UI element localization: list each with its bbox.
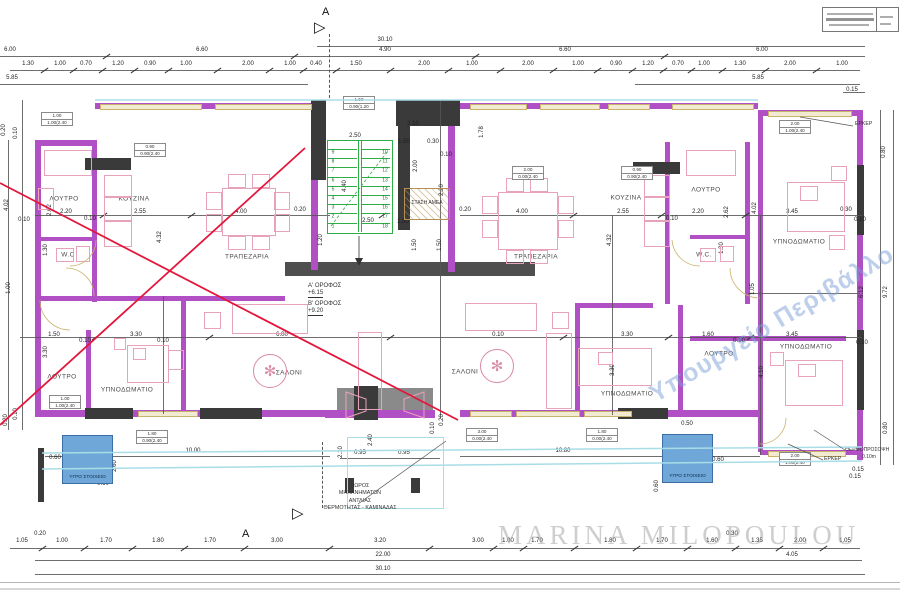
dim-line [35,560,750,561]
furniture [228,174,246,188]
dim-label: 0.20 [439,414,445,426]
opening-schedule-tag: 1.800.90(2.40 [136,430,168,444]
dim-label: 1.70 [204,538,216,544]
room-label: ΤΡΑΠΕΖΑΡΙΑ [225,254,269,261]
furniture [686,150,736,176]
stair-number: 4 [332,197,335,202]
dim-label: 10.80 [555,448,570,454]
dim-label: 0.10 [13,408,19,420]
dim-label: 0.80 [881,146,887,158]
dim-label: 6.00 [4,47,16,53]
furniture [252,236,270,250]
dim-label: 30.10 [377,37,392,43]
tag-heights: 1.00(2.40 [780,459,810,466]
title-block [822,7,899,32]
dim-label: 4.90 [379,47,391,53]
furniture [546,333,572,409]
dim-label: 1.05 [750,283,756,295]
dim-line [0,588,900,590]
dim-label: 1.00 [180,61,192,67]
plant: ✻ [480,349,514,383]
opening-schedule-tag: 3.000.00(2.40 [466,428,498,442]
erker-label-bottom: ΕΡΚΕΡ [824,456,841,462]
title-block-divider [876,8,877,31]
window-strip [138,411,198,417]
furniture [104,175,132,197]
dim-label: 6.60 [196,47,208,53]
dim-label: 2.55 [134,209,146,215]
dim-label: 2.50 [349,133,361,139]
window-strip [100,104,202,110]
dim-label: 1.50 [48,332,60,338]
wet-element-right: ΥΓΡΟ ΣΤΟΙΧΕΙΟ [662,434,713,483]
dim-label: 6.00 [756,47,768,53]
window-strip [584,411,632,417]
dim-label: 2.55 [617,209,629,215]
furniture [274,192,290,210]
thermal-facade-label: ΘΕΡΜΟΠΡΟΣΟΨΗ [845,447,889,453]
dim-label: 1.00 [56,538,68,544]
title-block-text-line [829,24,869,26]
opening-schedule-tag: 0.900.90(2.40 [134,143,166,157]
dim-label: 5.85 [6,75,18,81]
tag-heights: 0.90(2.40 [135,150,165,157]
furniture [204,312,221,329]
dim-label: 0.10 [13,127,19,139]
tag-heights: 1.00(2.40 [50,402,80,409]
dim-label: 0.70 [672,61,684,67]
dim-label: 0.10 [18,217,30,223]
stair-number: 15 [382,197,388,202]
furniture [232,304,308,334]
dim-label: 4.02 [4,199,10,211]
machinery-note: ΧΩΡΟΣ ΜΗΧΑΝΗΜΑΤΩΝ ΑΝΤΛΙΑΣ ΘΕΡΜΟΤΗΤΑΣ - Κ… [312,483,408,512]
dim-label: 2.10 [338,446,344,458]
dim-label: 1.50 [437,239,443,251]
furniture [644,197,670,221]
dim-label: 1.00 [572,61,584,67]
furniture [168,350,184,370]
dim-label: 1.20 [642,61,654,67]
wall-segment [35,140,97,146]
tag-heights: 0.90(2.40 [137,437,167,444]
dim-label: 1.30 [734,61,746,67]
dim-line [0,56,865,57]
furniture [56,248,74,262]
dim-label: 0.20 [1,124,7,136]
section-letter-top: A [322,6,329,18]
dim-label: 1.20 [112,61,124,67]
dim-label: 0.90 [610,61,622,67]
section-letter-bottom: A [242,528,249,540]
dim-label: 1.00 [698,61,710,67]
furniture [829,235,845,250]
level-name: Β' ΟΡΟΦΟΣ [308,301,341,307]
dim-label: 0.15 [849,474,861,480]
level-marker-b: Β' ΟΡΟΦΟΣ +9.20 [308,301,341,316]
wall-band [285,262,535,276]
dim-label: 0.90 [144,61,156,67]
furniture [578,348,652,386]
window-strip [215,104,312,110]
opening-schedule-tag: 1.001.00(2.40 [49,395,81,409]
dim-line [880,110,881,465]
window-strip [672,104,754,110]
section-centerline-bottom [322,442,323,508]
room-label: ΥΠΝΟΔΩΜΑΤΙΟ [101,387,153,394]
stair-number: 5 [332,187,335,192]
tag-heights: 0.00(2.40 [513,173,543,180]
dim-label: 0.60 [49,455,61,461]
wall-segment [35,140,41,417]
dim-line [10,70,860,71]
dim-label: 3.45 [786,332,798,338]
opening-schedule-tag: 1.800.00(2.40 [586,428,618,442]
furniture [104,197,132,221]
window-strip [470,104,527,110]
level-elevation: +9.20 [308,308,323,316]
furniture [228,236,246,250]
stair-number: 16 [382,206,388,211]
dim-label: 0.10 [84,216,96,222]
stair-number: 11 [382,160,387,165]
room-label: ΚΟΥΖΙΝΑ [611,195,642,202]
wall-column [38,448,44,502]
title-block-text-line [880,23,891,25]
section-marker-triangle-bottom: ▷ [292,506,304,521]
furniture [252,174,270,188]
dim-label: 1.00 [54,61,66,67]
dim-label: 3.00 [472,538,484,544]
dim-label: 2.62 [724,206,730,218]
dim-label: 0.50 [681,421,693,427]
dim-label: 0.20 [294,207,306,213]
furniture [498,192,558,250]
dim-label: 2.00 [413,160,419,172]
wet-element-left: ΥΓΡΟ ΣΤΟΙΧΕΙΟ [62,435,113,484]
dim-label: 5.85 [752,75,764,81]
wall-segment [325,410,435,418]
stair-number: 6 [332,178,335,183]
dim-line [750,560,862,561]
dim-label: 3.30 [130,332,142,338]
furniture [798,364,816,377]
furniture [770,352,784,366]
dim-label: 0.30 [427,139,439,145]
tag-heights: 0.90(2.40 [622,173,652,180]
wall-segment [575,303,653,308]
dim-label: 1.00 [466,61,478,67]
furniture [44,150,92,176]
dim-label: 0.10 [856,340,868,346]
dim-label: 6.60 [559,47,571,53]
section-marker-triangle-top: ▷ [314,20,326,35]
dim-label: 0.15 [852,467,864,473]
furniture [76,246,90,262]
dim-label: 2.00 [418,61,430,67]
dim-label: 0.80 [883,422,889,434]
furniture [552,312,569,329]
room-label: ΛΟΥΤΡΟ [47,374,76,381]
furniture [720,246,734,262]
window-strip [516,411,580,417]
room-label: ΣΑΛΟΝΙ [452,369,479,376]
dim-label: 2.20 [60,209,72,215]
wall-segment [35,237,93,241]
furniture [558,196,574,214]
room-label: ΛΟΥΤΡΟ [691,187,720,194]
stair-number: 7 [332,169,335,174]
dim-label: 1.80 [152,538,164,544]
furniture [530,250,548,264]
furniture [104,221,132,247]
room-label: ΥΠΝΟΔΩΜΑΤΙΟ [780,344,832,351]
wall-column [311,100,326,180]
dim-label: 10.00 [185,448,200,454]
dim-line [35,574,865,575]
wall-column [85,408,133,419]
dim-label: 0.10 [440,152,452,158]
dim-label: 1.30 [22,61,34,67]
dim-label: 1.00 [284,61,296,67]
dim-label: 30.10 [375,566,390,572]
dim-label: 1.30 [43,244,49,256]
tag-heights: 0.00(2.40 [467,435,497,442]
furniture [133,348,146,360]
window-strip [608,104,650,110]
dim-label: 4.05 [786,552,798,558]
furniture [114,338,126,350]
dim-label: 0.10 [79,338,91,344]
title-block-text-line [880,16,893,18]
level-elevation: +6.15 [308,290,323,298]
tag-heights: 1.00(2.40 [780,127,810,134]
wall-column [396,100,460,126]
dim-label: 1.50 [412,239,418,251]
wall-segment [745,142,750,304]
opening-schedule-tag: 0.900.90(2.40 [621,166,653,180]
furniture [558,220,574,238]
wet-element-label: ΥΓΡΟ ΣΤΟΙΧΕΙΟ [63,475,112,480]
stair-number: 12 [382,169,388,174]
stair-number: 8 [332,160,335,165]
architect-watermark: MARINA MILOPOULOU [498,520,859,551]
thermal-facade-value: 0.10m [862,454,876,460]
machinery-note-line: ΜΗΧΑΝΗΜΑΤΩΝ [312,490,408,497]
furniture [598,352,613,365]
dim-label: 1.50 [398,139,410,145]
dim-label: 1.00 [6,282,12,294]
furniture [274,214,290,232]
dim-label: 1.05 [16,538,28,544]
wet-element-label: ΥΓΡΟ ΣΤΟΙΧΕΙΟ [663,474,712,479]
dim-line [635,84,860,85]
stair-number: 13 [382,178,388,183]
furniture [38,188,54,210]
wall-column [857,165,864,235]
wall-segment [690,235,746,239]
furniture [465,303,537,331]
dim-label: 3.30 [621,332,633,338]
dim-line [440,100,441,418]
dim-label: 0.10 [157,338,169,344]
dim-line [0,84,308,85]
stair-number: 3 [332,206,335,211]
furniture [482,196,498,214]
dim-label: 1.50 [350,61,362,67]
dim-label: 2.00 [522,61,534,67]
level-marker-a: Α' ΟΡΟΦΟΣ +6.15 [308,283,341,298]
dim-label: 4.10 [759,366,765,378]
dim-label: 4.32 [157,231,163,243]
stair-number: 17 [382,215,388,220]
window-strip [768,111,852,117]
furniture [206,214,222,232]
dim-label: 3.20 [374,538,386,544]
dim-label: 9.72 [883,286,889,298]
dim-line [893,110,894,465]
opening-schedule-tag: 2.001.00(2.40 [779,120,811,134]
dim-line [22,100,23,430]
dim-label: 4.32 [607,234,613,246]
dim-label: 2.20 [692,209,704,215]
tag-heights: 1.00(2.40 [42,119,72,126]
machinery-note-line: ΧΩΡΟΣ [312,483,408,490]
furniture [358,332,382,410]
opening-schedule-tag: 1.001.00(2.40 [41,112,73,126]
floor-plan-canvas: 30.106.006.604.906.606.001.301.000.701.2… [0,0,900,600]
stair-number: 1 [332,224,335,229]
furniture [800,186,818,201]
stair-number: 2 [332,215,335,220]
dim-label: 0.70 [80,61,92,67]
dim-label: 2.00 [784,61,796,67]
dim-label: 1.78 [479,126,485,138]
title-block-text-line [827,13,873,15]
accessible-stop-label: ΣΤΑΣΗ ΑΜΕΑ [405,200,449,206]
stair-number: 10 [382,151,388,156]
title-block-text-line [826,18,874,21]
dim-label: 0.10 [492,332,504,338]
window-strip [470,411,512,417]
tag-heights: 0.00(2.40 [587,435,617,442]
dim-label: 1.20 [318,234,324,246]
dim-label: 22.00 [375,552,390,558]
room-label: ΥΠΝΟΔΩΜΑΤΙΟ [601,391,653,398]
dim-label: 0.10 [854,217,866,223]
furniture [506,250,524,264]
dim-line [317,46,865,47]
furniture [222,188,276,236]
dim-label: 4.02 [752,202,758,214]
dim-label: 3.00 [271,538,283,544]
dim-label: 0.60 [712,457,724,463]
window-strip [540,104,600,110]
level-name: Α' ΟΡΟΦΟΣ [308,283,341,289]
opening-schedule-tag: 2.001.00(2.40 [779,452,811,466]
tag-heights: 0.90(1.20 [344,103,374,110]
plant: ✻ [253,354,287,388]
opening-schedule-tag: 1.500.90(1.20 [343,96,375,110]
furniture [644,221,670,247]
furniture [206,192,222,210]
stair-rail [358,140,359,232]
dim-label: 2.00 [242,61,254,67]
stair-number: 14 [382,187,388,192]
wall-segment [311,178,318,270]
dim-label: 0.40 [310,61,322,67]
dim-label: 2.10 [407,121,419,127]
accessible-stop-hatch: ΣΤΑΣΗ ΑΜΕΑ [404,188,450,220]
wall-segment [35,296,285,301]
dim-label: 0.20 [459,207,471,213]
dim-label: 1.60 [702,332,714,338]
furniture [700,248,716,262]
dim-label: 1.70 [100,538,112,544]
section-centerline-top [329,34,330,98]
dim-label: 0.20 [34,531,46,537]
dim-label: 0.15 [846,87,858,93]
stair-number: 18 [382,224,388,229]
dim-line [0,582,900,583]
furniture [831,166,847,181]
furniture [482,220,498,238]
machinery-note-line: ΘΕΡΜΟΤΗΤΑΣ - ΚΑΜΙΝΑΔΑΣ [312,505,408,512]
room-label: ΥΠΝΟΔΩΜΑΤΙΟ [773,239,825,246]
stair-number: 9 [332,151,335,156]
dim-label: 0.10 [430,422,436,434]
wall-column [200,408,262,419]
opening-schedule-tag: 2.000.00(2.40 [512,166,544,180]
dim-label: 0.60 [654,480,660,492]
machinery-note-line: ΑΝΤΛΙΑΣ [312,498,408,505]
dim-label: 0.20 [3,414,9,426]
dim-label: 1.00 [836,61,848,67]
erker-label-top: ΕΡΚΕΡ [855,121,872,127]
dim-label: 3.30 [43,346,49,358]
